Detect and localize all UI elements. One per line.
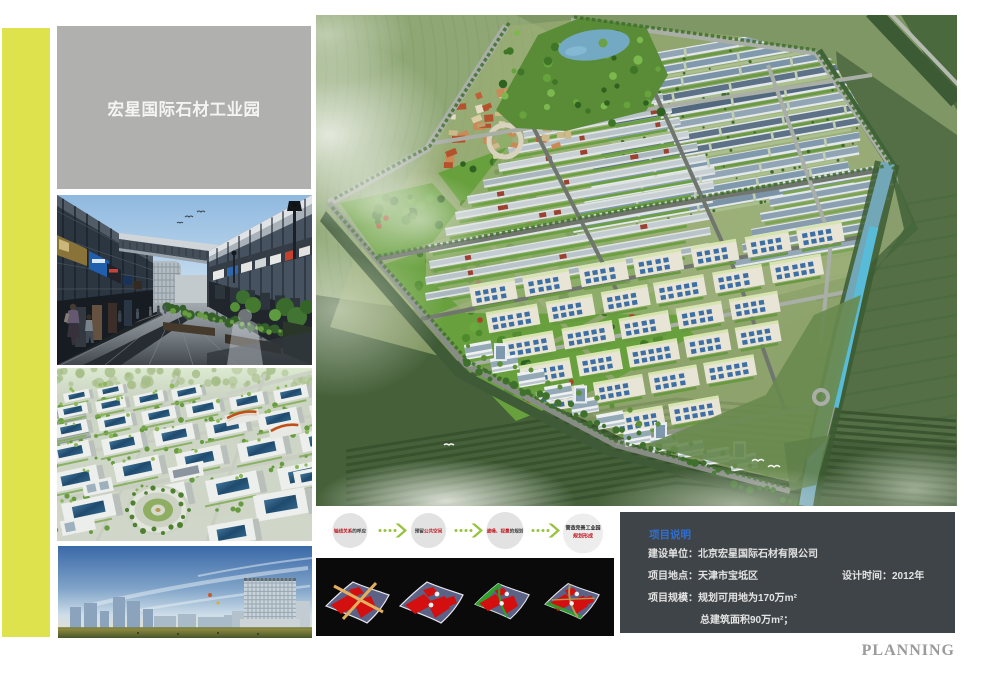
svg-text:预留公共空间: 预留公共空间	[415, 528, 443, 535]
svg-text:规划形成: 规划形成	[573, 533, 593, 540]
svg-text:营造完善工业园: 营造完善工业园	[565, 525, 600, 532]
svg-text:遮噪、视景的规划: 遮噪、视景的规划	[487, 528, 524, 535]
svg-text:轴线关系的呼应: 轴线关系的呼应	[334, 528, 367, 535]
